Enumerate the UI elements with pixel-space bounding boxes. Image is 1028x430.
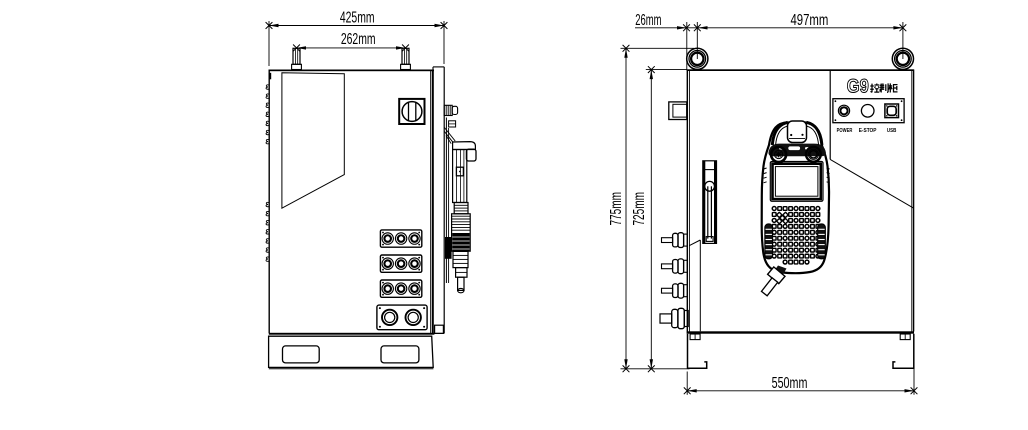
svg-text:26mm: 26mm <box>635 12 661 29</box>
svg-text:G9: G9 <box>847 76 869 98</box>
svg-text:POWER: POWER <box>837 128 853 134</box>
svg-text:USB: USB <box>887 128 896 134</box>
svg-text:262mm: 262mm <box>341 31 376 48</box>
svg-text:775mm: 775mm <box>608 192 625 226</box>
svg-text:425mm: 425mm <box>340 9 375 26</box>
svg-text:550mm: 550mm <box>772 375 808 392</box>
svg-text:497mm: 497mm <box>790 12 828 29</box>
svg-text:725mm: 725mm <box>631 192 648 226</box>
svg-text:E-STOP: E-STOP <box>859 128 877 134</box>
